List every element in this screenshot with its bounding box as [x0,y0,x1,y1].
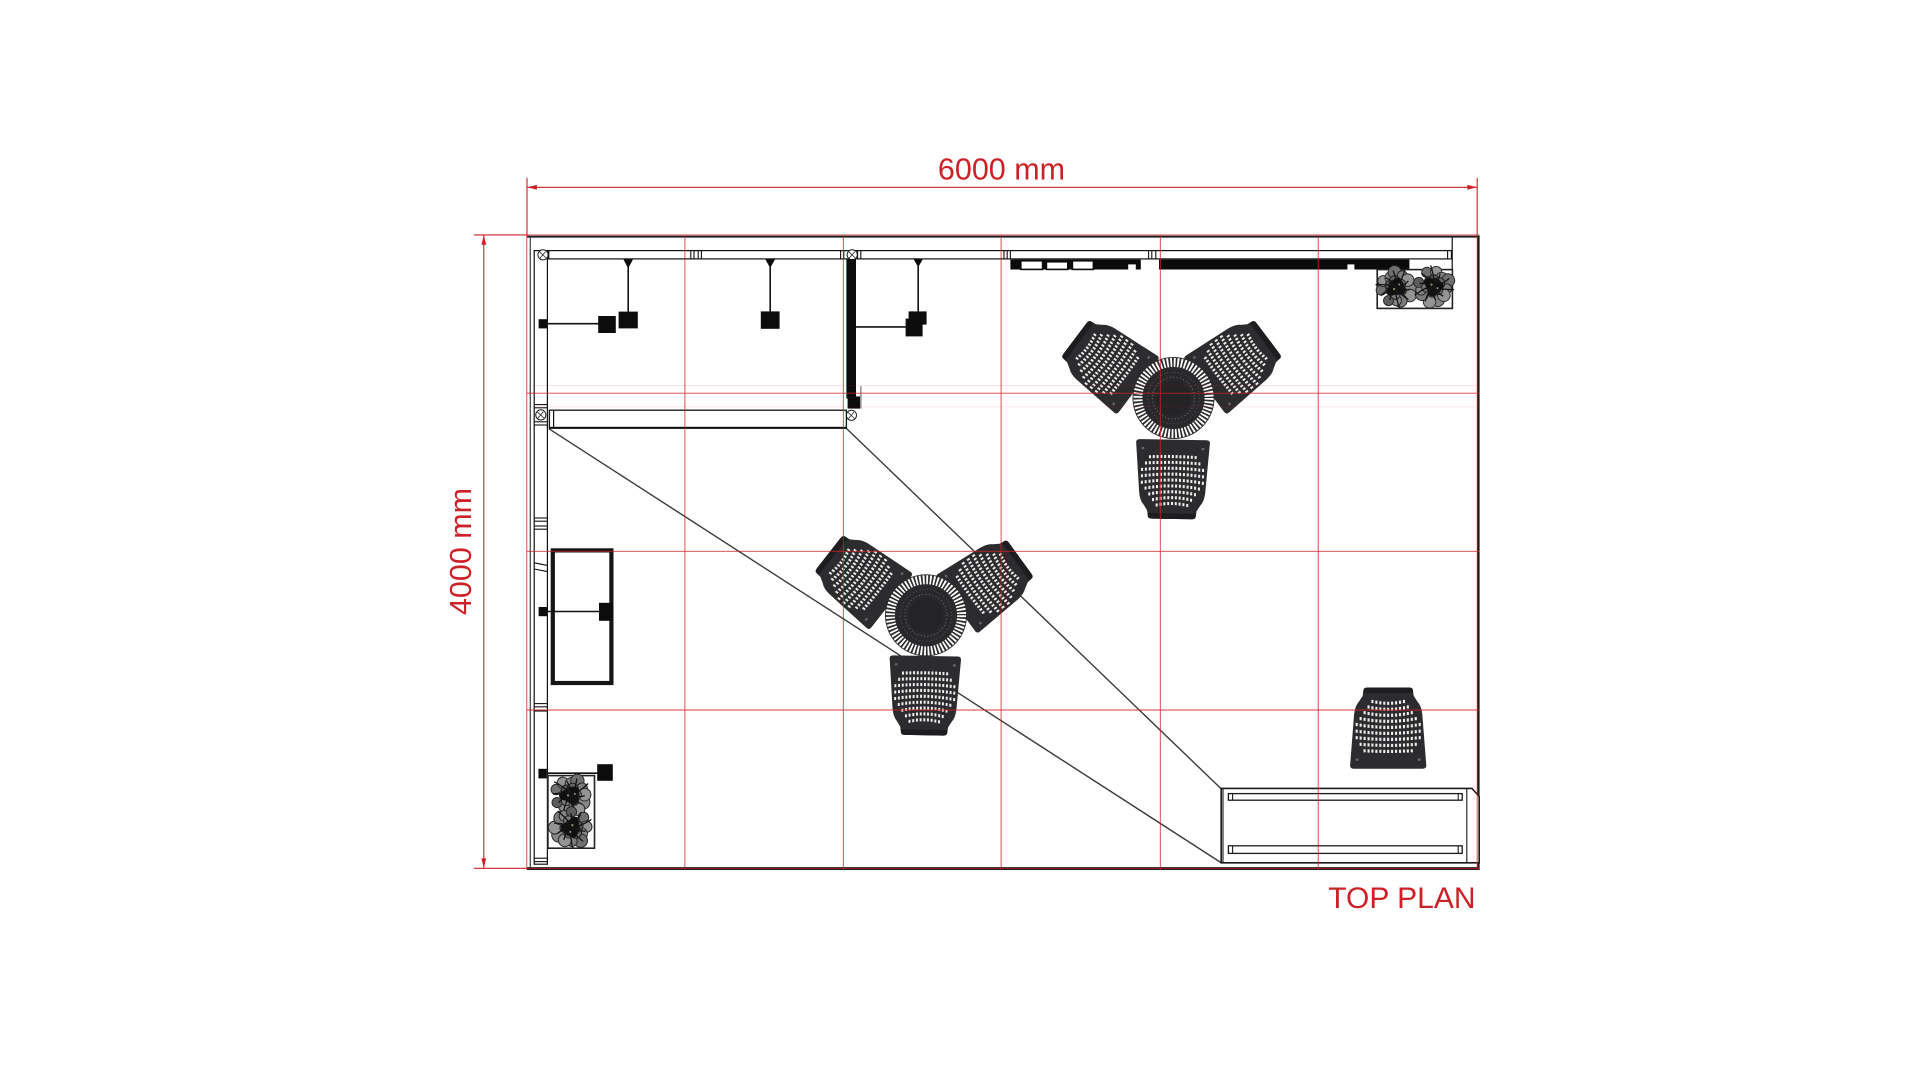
svg-text:4000 mm: 4000 mm [444,488,478,615]
svg-text:6000 mm: 6000 mm [938,153,1065,187]
svg-text:TOP PLAN: TOP PLAN [1328,882,1475,915]
